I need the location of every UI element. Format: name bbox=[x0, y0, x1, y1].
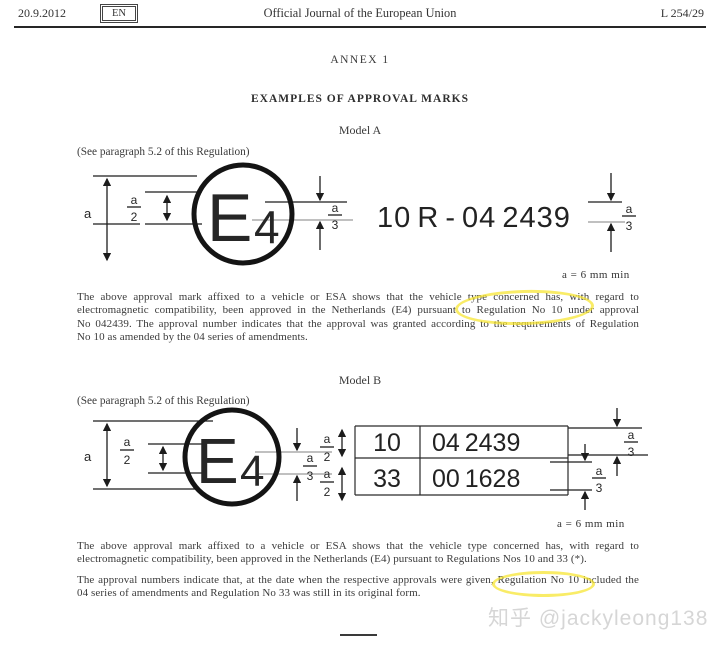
model-b-diagram: a a 2 E 4 a 3 a 2 a 2 10 04 2439 33 00 1… bbox=[70, 406, 670, 524]
fraction-a-over-2-den: 2 bbox=[324, 485, 331, 499]
paragraph-line: The above approval mark affixed to a veh… bbox=[77, 291, 639, 304]
fraction-a-over-3-num: a bbox=[596, 464, 603, 478]
watermark: 知乎 @jackyleong138 bbox=[488, 602, 708, 632]
table-cell-regulation-1: 10 bbox=[373, 429, 401, 457]
model-b-paragraph-2: The approval numbers indicate that, at t… bbox=[77, 574, 639, 601]
paragraph-line: The above approval mark affixed to a veh… bbox=[77, 540, 639, 553]
fraction-a-over-2-den: 2 bbox=[131, 210, 138, 224]
header-rule bbox=[14, 26, 706, 28]
fraction-a-over-2-den: 2 bbox=[124, 453, 131, 467]
paragraph-line: No 042439. The approval number indicates… bbox=[77, 318, 639, 331]
paragraph-line: The approval numbers indicate that, at t… bbox=[77, 574, 639, 587]
annex-title: ANNEX 1 bbox=[0, 54, 720, 66]
table-cell-regulation-2: 33 bbox=[373, 465, 401, 493]
model-a-label: Model A bbox=[0, 123, 720, 138]
paragraph-line: No 10 as amended by the 04 series of ame… bbox=[77, 331, 639, 344]
fraction-a-over-3-den: 3 bbox=[626, 219, 633, 233]
approval-code: 10 R - 04 2439 bbox=[377, 202, 571, 234]
page-number: L 254/29 bbox=[661, 6, 704, 21]
fraction-a-over-3-num: a bbox=[628, 428, 635, 442]
dim-a-label: a bbox=[84, 449, 92, 464]
fraction-a-over-3-den: 3 bbox=[596, 481, 603, 495]
fraction-a-over-3-num: a bbox=[626, 202, 633, 216]
model-b-label: Model B bbox=[0, 373, 720, 388]
journal-page: 20.9.2012 EN Official Journal of the Eur… bbox=[0, 0, 720, 647]
fraction-a-over-3-num: a bbox=[332, 201, 339, 215]
fraction-a-over-2-num: a bbox=[324, 432, 331, 446]
model-a-see-note: (See paragraph 5.2 of this Regulation) bbox=[77, 146, 250, 158]
fraction-a-over-3-den: 3 bbox=[307, 469, 314, 483]
e-mark-number: 4 bbox=[240, 447, 264, 496]
annex-heading: EXAMPLES OF APPROVAL MARKS bbox=[0, 93, 720, 105]
fraction-a-over-2-num: a bbox=[131, 193, 138, 207]
model-a-paragraph: The above approval mark affixed to a veh… bbox=[77, 291, 639, 345]
dim-a-label: a bbox=[84, 206, 92, 221]
e-mark-number: 4 bbox=[254, 201, 280, 253]
fraction-a-over-2-num: a bbox=[324, 467, 331, 481]
paragraph-line: 04 series of amendments and Regulation N… bbox=[77, 587, 639, 600]
e-mark-letter: E bbox=[207, 180, 252, 256]
fraction-a-over-3-den: 3 bbox=[628, 445, 635, 459]
fraction-a-over-2-num: a bbox=[124, 435, 131, 449]
paragraph-line: electromagnetic compatibility, been appr… bbox=[77, 553, 639, 566]
fraction-a-over-2-den: 2 bbox=[324, 450, 331, 464]
footnote-rule bbox=[340, 634, 377, 636]
model-b-size-note: a = 6 mm min bbox=[557, 518, 625, 530]
table-cell-approval-1: 04 2439 bbox=[432, 429, 520, 457]
fraction-a-over-3-den: 3 bbox=[332, 218, 339, 232]
model-a-size-note: a = 6 mm min bbox=[562, 269, 630, 281]
model-a-diagram: a a 2 E 4 a 3 10 R - 04 2439 a 3 bbox=[70, 160, 670, 272]
fraction-a-over-3-num: a bbox=[307, 451, 314, 465]
paragraph-line: electromagnetic compatibility, been appr… bbox=[77, 304, 639, 317]
model-b-paragraph-1: The above approval mark affixed to a veh… bbox=[77, 540, 639, 567]
table-cell-approval-2: 00 1628 bbox=[432, 465, 520, 493]
e-mark-letter: E bbox=[196, 425, 239, 497]
journal-title: Official Journal of the European Union bbox=[0, 6, 720, 21]
